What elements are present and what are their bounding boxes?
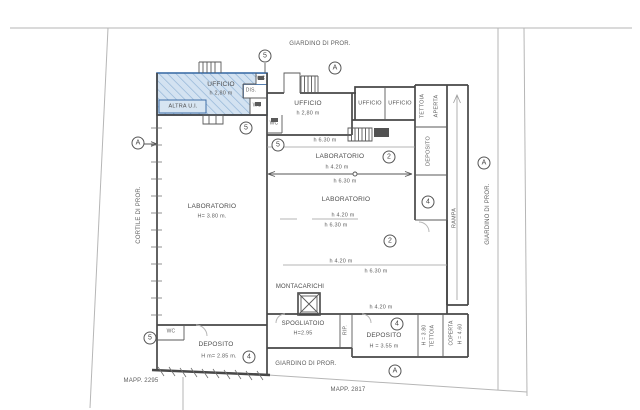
- label-deposito-right: DEPOSITO: [366, 333, 401, 340]
- label-garden-right: GIARDINO DI PROR.: [485, 183, 491, 244]
- label-deposito-left: DEPOSITO: [198, 342, 233, 349]
- label-laboratorio-low: LABORATORIO: [322, 197, 371, 204]
- label-spogliatoio: SPOGLIATOIO: [282, 321, 325, 327]
- label-garden-top: GIARDINO DI PROR.: [289, 41, 350, 47]
- label-altra-ui: ALTRA U.I.: [168, 104, 197, 110]
- label-h630-2: h 6.30 m: [333, 179, 356, 185]
- marker-2-lower: 2: [384, 235, 397, 248]
- marker-2-upper: 2: [383, 151, 396, 164]
- marker-4-strip: 4: [422, 196, 435, 209]
- label-coperta: COPERTA: [450, 320, 455, 345]
- label-laboratorio-left: LABORATORIO: [188, 204, 237, 211]
- label-tettoia-bottom: TETTOIA: [431, 325, 436, 347]
- label-h630-3: h 6.30 m: [324, 223, 347, 229]
- label-coperta-height: H = 4.60: [459, 324, 464, 345]
- marker-a-bottom: A: [389, 365, 402, 378]
- label-laboratorio-left-height: H= 3.80 m.: [197, 214, 226, 220]
- marker-a-right: A: [478, 157, 491, 170]
- label-h420-2: h 4.20 m: [331, 213, 354, 219]
- label-ufficio-center: UFFICIO: [294, 101, 321, 108]
- label-rip: RIP.: [344, 325, 349, 335]
- label-unit-ufficio-height: h 2,80 m: [209, 91, 232, 97]
- marker-5-bottom-left: 5: [144, 332, 157, 345]
- label-deposito-strip: DEPOSITO: [426, 136, 432, 166]
- label-ufficio-b: UFFICIO: [388, 101, 411, 107]
- floorplan-linework: [0, 0, 640, 410]
- label-h420-4: h 4.20 m: [369, 305, 392, 311]
- label-garden-bottom: GIARDINO DI PROR.: [275, 361, 336, 367]
- label-ufficio-a: UFFICIO: [358, 101, 381, 107]
- label-tettoia-top: TETTOIA: [420, 94, 426, 119]
- label-h630-4: h 6.30 m: [364, 269, 387, 275]
- marker-5-top: 5: [259, 50, 272, 63]
- marker-5-mid: 5: [272, 139, 285, 152]
- label-deposito-right-height: H = 3.55 m: [369, 344, 398, 350]
- label-dis: DIS.: [246, 89, 257, 94]
- label-aperta: APERTA: [434, 95, 440, 118]
- label-unit-ufficio: UFFICIO: [207, 82, 234, 89]
- label-tettoia-bottom-height: H = 3.80: [423, 325, 428, 346]
- label-courtyard-left: CORTILE DI PROR.: [136, 186, 142, 243]
- marker-4-deposito-left: 4: [243, 351, 256, 364]
- label-spogliatoio-height: H=2.95: [293, 331, 312, 337]
- label-deposito-left-height: H m= 2.85 m.: [201, 354, 237, 360]
- label-parcel-bottom: MAPP. 2817: [331, 387, 366, 393]
- stair-landing-block: [374, 128, 389, 137]
- label-rampa: RAMPA: [452, 208, 458, 228]
- label-h420-1: h 4.20 m: [325, 165, 348, 171]
- label-wc-2: WC: [270, 122, 279, 127]
- elevator-shaft: [298, 293, 320, 315]
- label-wc-unit: WC: [257, 77, 266, 82]
- label-wc-1: WC: [253, 104, 262, 109]
- marker-5-mid-left: 5: [240, 122, 253, 135]
- label-montacarichi: MONTACARICHI: [276, 284, 324, 290]
- marker-4-deposito-right: 4: [391, 318, 404, 331]
- marker-a-top: A: [329, 62, 342, 75]
- floor-plan: GIARDINO DI PROR. CORTILE DI PROR. GIARD…: [0, 0, 640, 410]
- label-parcel-left: MAPP. 2295: [124, 378, 159, 384]
- label-h420-3: h 4.20 m: [329, 259, 352, 265]
- label-h630-1: h 6.30 m: [313, 138, 336, 144]
- label-laboratorio-mid: LABORATORIO: [316, 154, 365, 161]
- marker-a-left: A: [132, 137, 145, 150]
- label-wc-bottom-left: WC: [167, 330, 176, 335]
- label-ufficio-center-height: h 2,80 m: [296, 111, 319, 117]
